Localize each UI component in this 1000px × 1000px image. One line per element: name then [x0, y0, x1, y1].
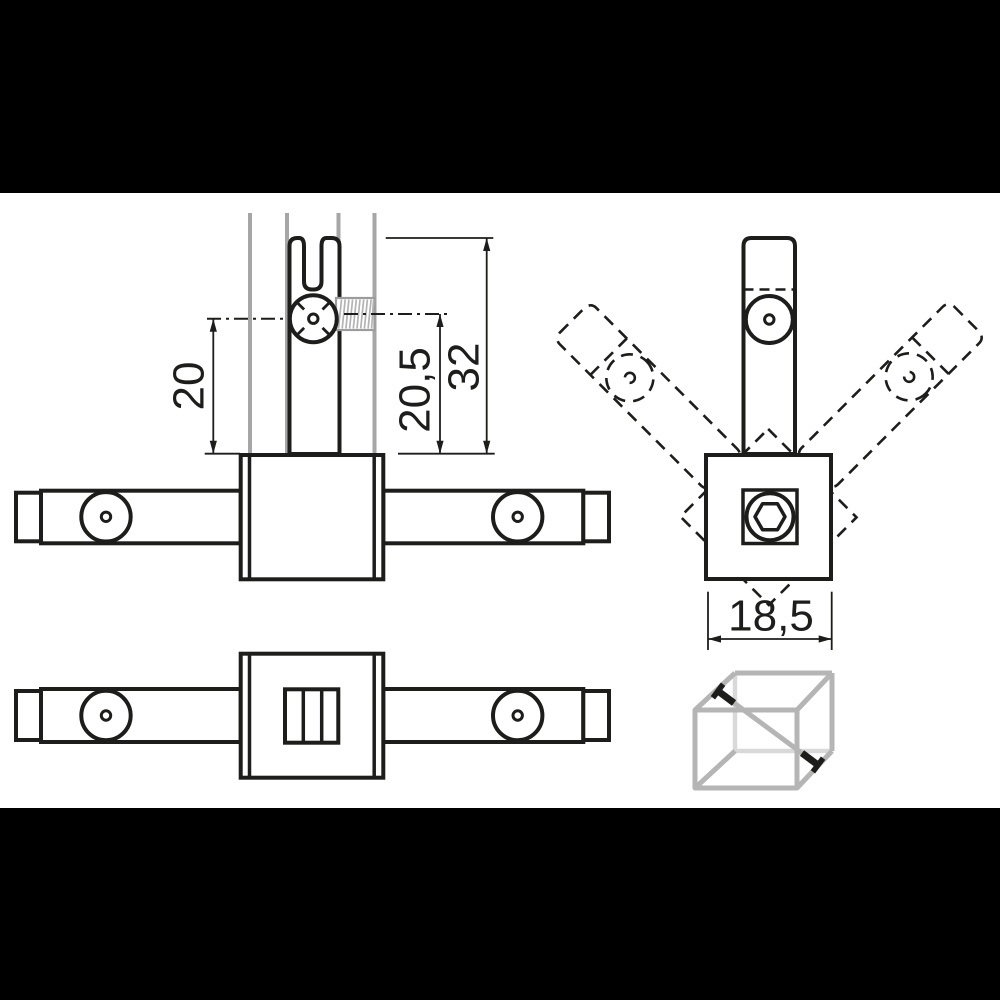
dimension-18-5: 18,5 [708, 592, 832, 651]
side-view-swivel [554, 238, 985, 605]
right-end-cap-front [583, 493, 609, 542]
pivot-center-dot [309, 314, 318, 323]
dim-label-18-5: 18,5 [728, 592, 814, 641]
arm-side-view [744, 238, 796, 454]
dim-label-20: 20 [165, 362, 214, 411]
dimension-20: 20 [165, 319, 241, 454]
front-center-block [241, 455, 384, 579]
pivot-joint-front [290, 295, 337, 342]
letterbox-bottom [0, 808, 1000, 1000]
letterbox-top [0, 0, 1000, 193]
dim-label-32: 32 [440, 343, 489, 392]
right-end-cap-bottom [583, 691, 609, 740]
left-end-cap-bottom [16, 691, 41, 740]
fork-slot-bottom [285, 689, 338, 742]
hex-socket-icon [755, 504, 785, 530]
left-end-cap-front [16, 493, 41, 542]
technical-drawing-page: 20 20,5 32 [0, 0, 1000, 1000]
cube-diagonal-icon [695, 673, 832, 788]
dim-label-20-5: 20,5 [391, 347, 440, 433]
connector-dimension-drawing: 20 20,5 32 [0, 0, 1000, 1000]
bottom-view [16, 654, 609, 778]
front-view [16, 213, 609, 579]
fork-arm-front [290, 238, 340, 454]
